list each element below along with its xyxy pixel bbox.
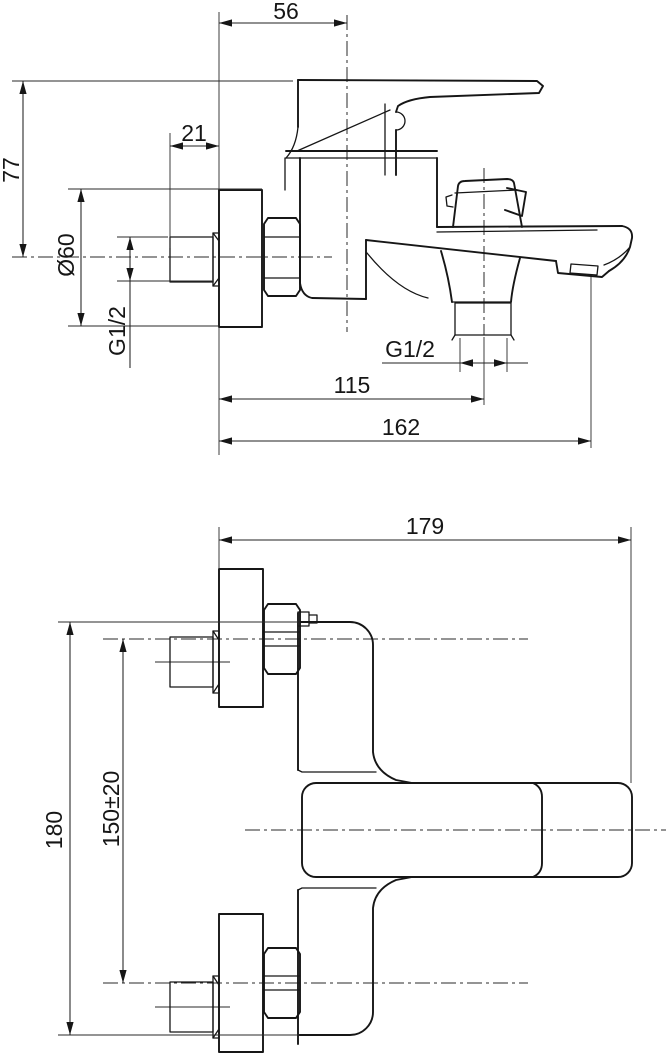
dim-g12-outlet-label: G1/2 <box>385 336 435 362</box>
technical-drawing-page: 56 21 77 Ø60 G1/2 G1/2 115 162 <box>0 0 668 1054</box>
dim-d60-label: Ø60 <box>53 233 79 276</box>
dim-179-label: 179 <box>406 513 444 539</box>
faucet-technical-drawing: 56 21 77 Ø60 G1/2 G1/2 115 162 <box>0 0 668 1054</box>
dim-162-label: 162 <box>382 414 420 440</box>
dim-g12-inlet-label: G1/2 <box>104 306 130 356</box>
dim-77-label: 77 <box>0 157 24 183</box>
dim-21-label: 21 <box>181 120 207 146</box>
dim-115-label: 115 <box>334 372 371 398</box>
dim-150-label: 150±20 <box>98 771 124 848</box>
dim-56-label: 56 <box>273 0 299 24</box>
spout-top-edge <box>437 226 622 227</box>
dim-180-label: 180 <box>41 811 67 849</box>
